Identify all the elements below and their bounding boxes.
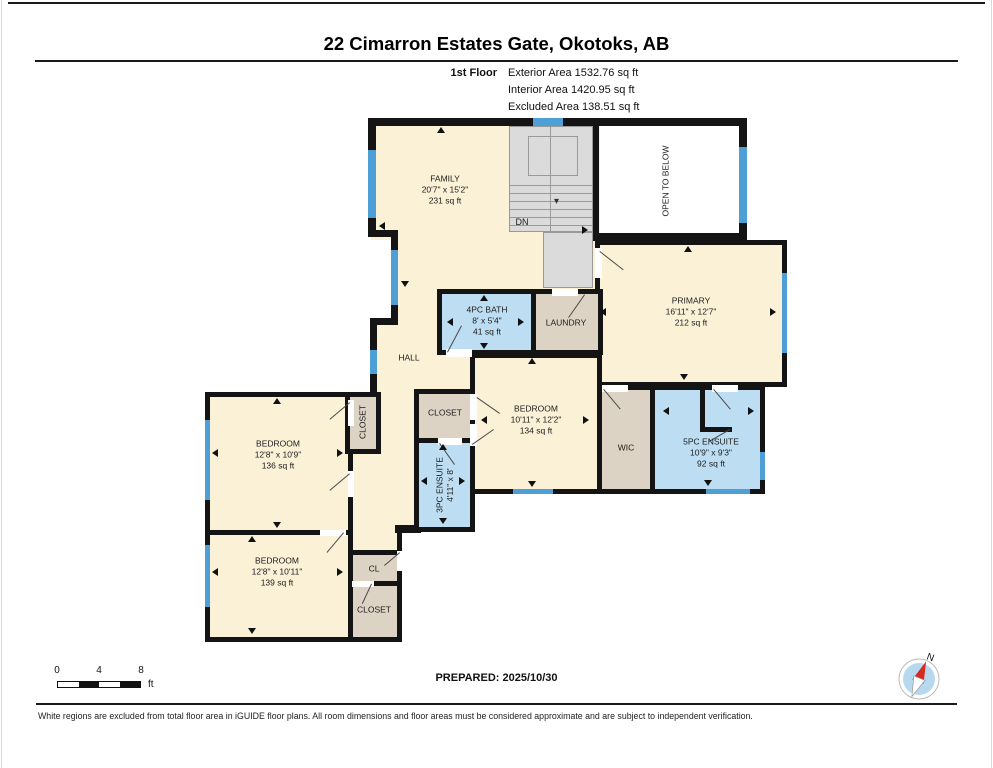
room-dims: 16'11" x 12'7" [666,306,717,317]
room-name: BEDROOM [252,555,303,566]
dimension-arrow-down [704,480,712,486]
footer-divider [36,703,957,705]
room-area: 231 sq ft [422,196,469,207]
window-marker [760,452,765,480]
dimension-arrow-left [447,318,453,326]
window-marker [782,273,787,353]
dimension-arrow-right [518,318,524,326]
room-wic-label: WIC [618,442,635,453]
stair-rail [528,136,578,176]
room-name: HALL [398,352,419,363]
dimension-arrow-up [684,246,692,252]
page-title: 22 Cimarron Estates Gate, Okotoks, AB [0,33,993,55]
dimension-arrow-right [583,416,589,424]
dimension-arrow-right [337,568,343,576]
room-area: 41 sq ft [467,327,508,338]
dimension-arrow-right [748,407,754,415]
dimension-arrow-left [212,449,218,457]
room-dims: 8' x 5'4" [467,315,508,326]
room-5pc-ensuite-label: 5PC ENSUITE 10'9" x 9'3" 92 sq ft [683,436,739,469]
window-marker [739,147,747,223]
room-name: OPEN TO BELOW [661,145,672,216]
stairs-dn-label: DN [516,217,529,229]
interior-area: Interior Area 1420.95 sq ft [508,84,635,96]
door-gap [552,289,578,296]
staircase-landing [543,232,593,288]
room-closet-bottom-label: CLOSET [357,604,391,615]
floorplan-page: 22 Cimarron Estates Gate, Okotoks, AB 1s… [0,0,993,768]
room-name: PRIMARY [666,295,717,306]
window-marker [205,420,210,500]
room-4pc-bath-label: 4PC BATH 8' x 5'4" 41 sq ft [467,304,508,337]
room-name: FAMILY [422,173,469,184]
room-closet-mid-label: CLOSET [428,407,462,418]
room-wic [597,385,655,494]
room-dims: 12'8" x 10'9" [255,449,302,460]
dimension-arrow-up [437,127,445,133]
dimension-arrow-right [582,226,588,234]
compass-north-label: N [925,651,936,664]
dimension-arrow-left [481,416,487,424]
door-gap [446,349,472,357]
window-marker [370,350,377,374]
room-3pc-ensuite-label: 3PC ENSUITE 4'11" x 8' [434,457,455,513]
stair-direction-arrow: ▾ [554,196,559,207]
compass-icon: N [892,648,950,706]
dimension-arrow-down [273,522,281,528]
room-name: LAUNDRY [546,317,586,328]
dimension-arrow-up [480,295,488,301]
window-marker [205,545,210,607]
room-cl-label: CL [369,563,380,574]
window-marker [533,118,563,126]
room-dims: 4'11" x 8' [445,457,456,513]
excluded-area: Excluded Area 138.51 sq ft [508,101,639,113]
room-name: CLOSET [358,405,369,439]
room-area: 139 sq ft [252,578,303,589]
window-marker [513,489,553,494]
prepared-date: PREPARED: 2025/10/30 [0,672,993,684]
room-name: CL [369,563,380,574]
dimension-arrow-up [528,358,536,364]
room-dims: 12'8" x 10'11" [252,566,303,577]
room-family-label: FAMILY 20'7" x 15'2" 231 sq ft [422,173,469,206]
wall-segment [593,121,599,238]
dimension-arrow-up [439,444,447,450]
window-marker [368,150,376,218]
room-name: BEDROOM [511,403,562,414]
dimension-arrow-left [663,407,669,415]
room-name: WIC [618,442,635,453]
dimension-arrow-right [337,449,343,457]
room-area: 134 sq ft [511,426,562,437]
left-edge [1,0,2,768]
dimension-arrow-right [770,308,776,316]
room-name: 5PC ENSUITE [683,436,739,447]
room-bedroom-left-bottom-label: BEDROOM 12'8" x 10'11" 139 sq ft [252,555,303,588]
room-dims: 10'11" x 12'2" [511,414,562,425]
room-area: 92 sq ft [683,459,739,470]
header-divider [35,60,958,62]
dimension-arrow-left [212,568,218,576]
room-dims: 10'9" x 9'3" [683,447,739,458]
dimension-arrow-left [600,308,606,316]
floor-label: 1st Floor [377,67,497,79]
room-area: 212 sq ft [666,318,717,329]
hall-lower-area [353,450,419,532]
room-bedroom-mid-label: BEDROOM 10'11" x 12'2" 134 sq ft [511,403,562,436]
room-closet-left-label: CLOSET [358,405,369,439]
room-primary-label: PRIMARY 16'11" x 12'7" 212 sq ft [666,295,717,328]
dimension-arrow-left [421,477,427,485]
room-name: BEDROOM [255,438,302,449]
room-laundry-label: LAUNDRY [546,317,586,328]
dimension-arrow-up [273,398,281,404]
dimension-arrow-down [248,628,256,634]
top-border-line [8,2,985,4]
dimension-arrow-up [248,536,256,542]
hall-label: HALL [398,352,419,363]
exterior-area: Exterior Area 1532.76 sq ft [508,67,638,79]
room-area: 136 sq ft [255,461,302,472]
room-name: CLOSET [428,407,462,418]
dimension-arrow-left [379,222,385,230]
window-marker [391,250,398,305]
room-dims: 20'7" x 15'2" [422,184,469,195]
wall-segment [700,388,705,432]
dimension-arrow-right [459,477,465,485]
room-name: 4PC BATH [467,304,508,315]
open-to-below-label: OPEN TO BELOW [661,145,672,216]
dimension-arrow-down [528,481,536,487]
right-edge [991,0,992,768]
room-bedroom-left-top-label: BEDROOM 12'8" x 10'9" 136 sq ft [255,438,302,471]
dimension-arrow-down [401,281,409,287]
dimension-arrow-down [439,518,447,524]
dimension-arrow-down [680,374,688,380]
room-name: CLOSET [357,604,391,615]
room-name: 3PC ENSUITE [434,457,445,513]
dimension-arrow-down [480,343,488,349]
window-marker [706,489,750,494]
disclaimer-text: White regions are excluded from total fl… [38,711,753,721]
